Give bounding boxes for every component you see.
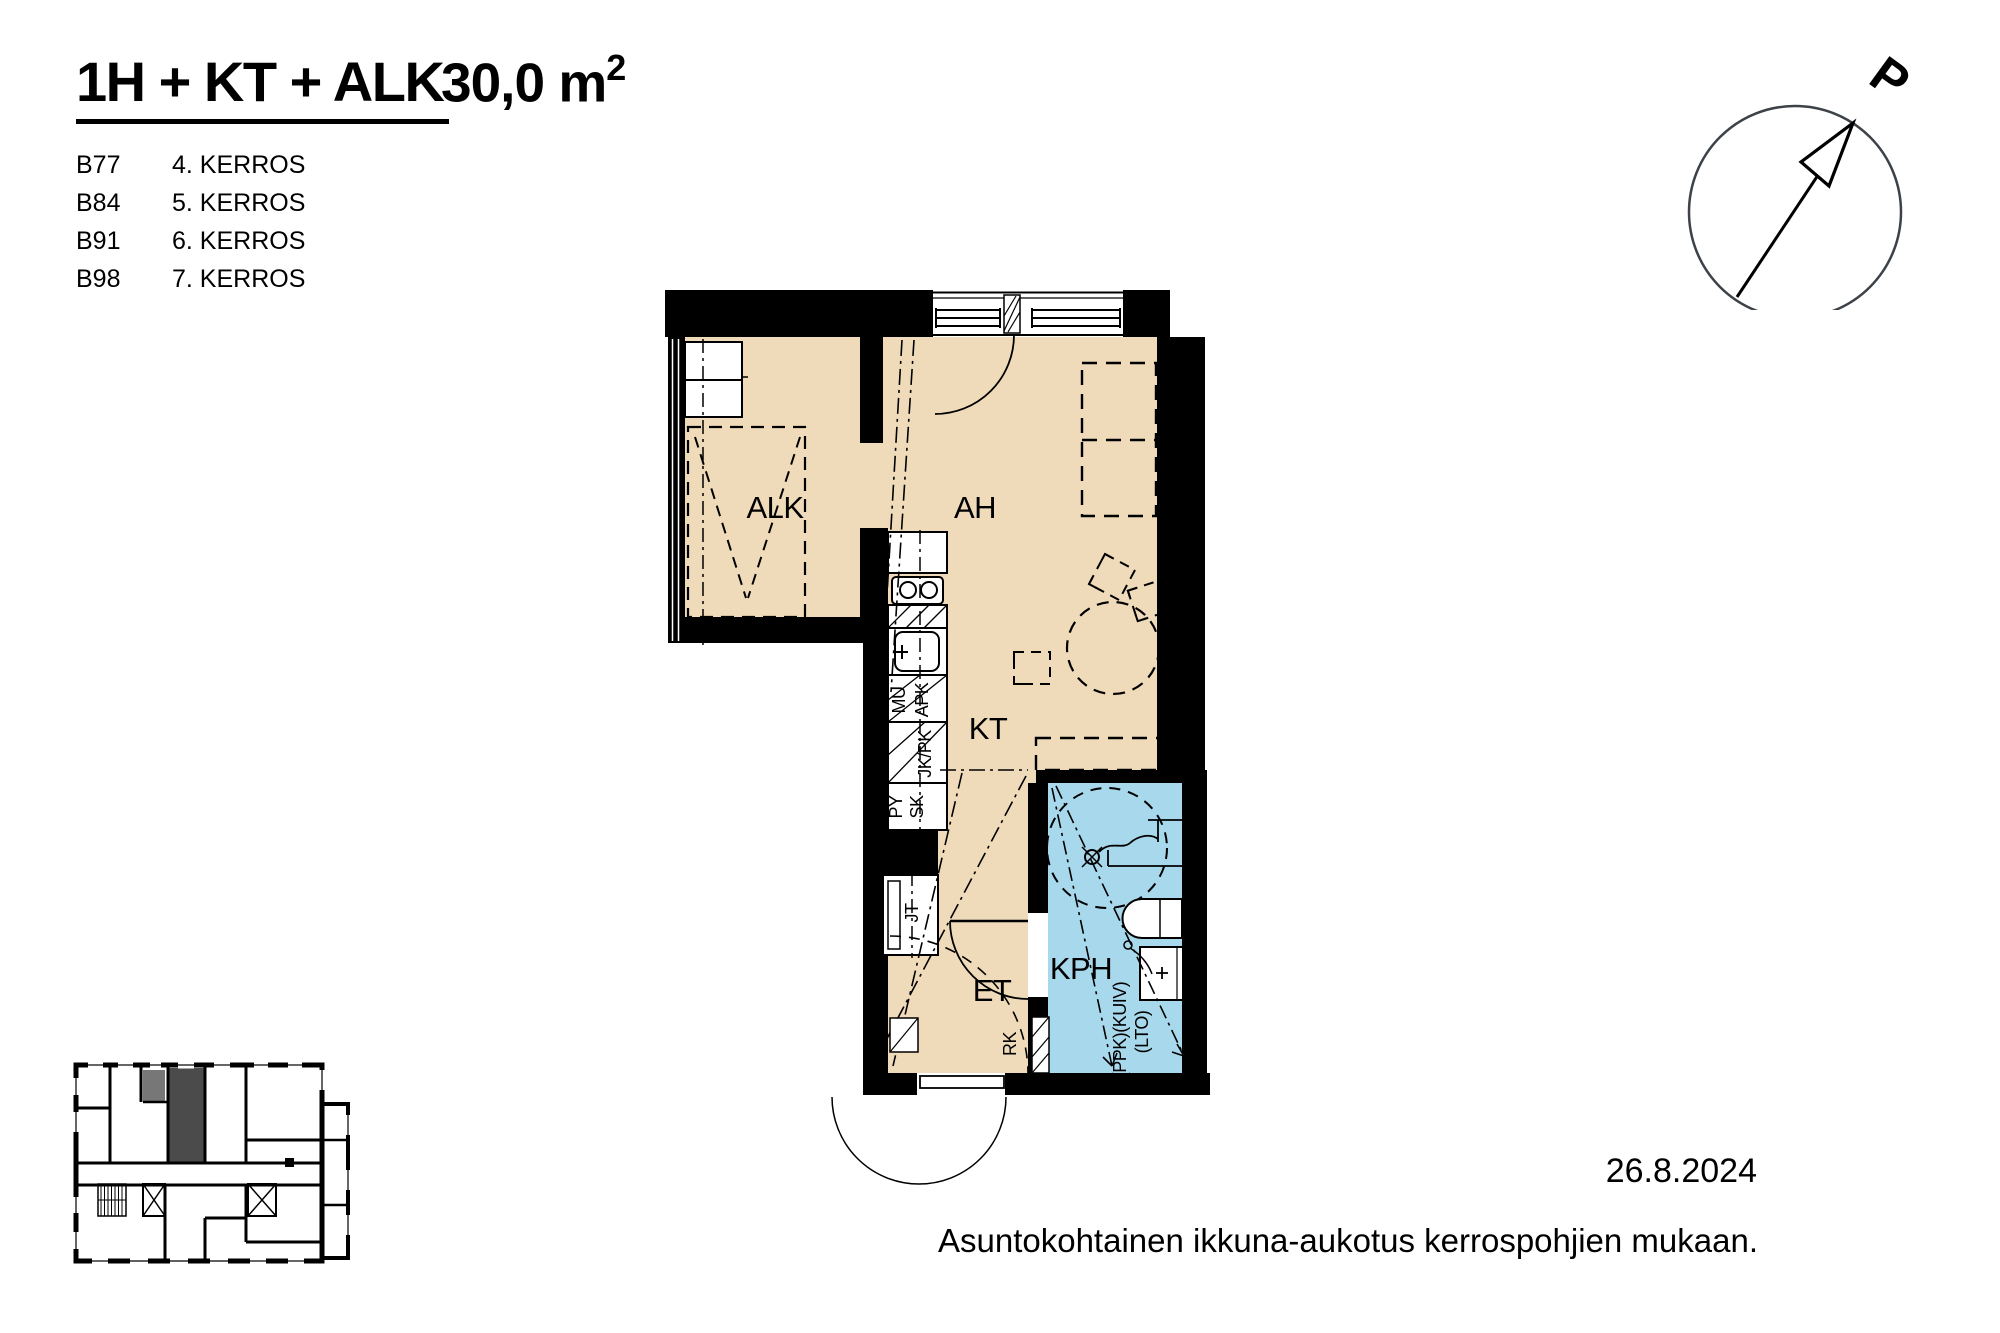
fixture-label-sk: SK (907, 795, 927, 819)
area-value: 30,0 m (441, 51, 606, 113)
window-note: Asuntokohtainen ikkuna-aukotus kerrospoh… (790, 1222, 1758, 1260)
apartment-floor: 6. KERROS (172, 222, 305, 260)
fixture-label-lto: (LTO) (1132, 1011, 1152, 1054)
room-label-et: ET (973, 973, 1012, 1008)
fixture-label-mu: MU (889, 687, 909, 714)
apartment-floor: 7. KERROS (172, 260, 305, 298)
opening-floor (858, 443, 888, 528)
north-arrow-icon: P (1660, 30, 1950, 310)
apartment-list: B77 4. KERROS B84 5. KERROS B91 6. KERRO… (76, 146, 305, 298)
apartment-row: B91 6. KERROS (76, 222, 305, 260)
apartment-id: B91 (76, 222, 172, 260)
key-plan (58, 1048, 368, 1278)
fixture-label-jt: JT (902, 903, 922, 923)
floor-plan-sheet: 1H + KT + ALK 30,0 m2 B77 4. KERROS B84 … (0, 0, 2000, 1333)
apartment-id: B84 (76, 184, 172, 222)
electrical-cabinet (1032, 1017, 1049, 1073)
entrance-door-leaf (920, 1076, 1004, 1088)
fixture-label-ppk-kuiv: (PPK)(KUIV) (1110, 982, 1130, 1079)
drawing-date: 26.8.2024 (1450, 1152, 1757, 1191)
highlighted-unit-part (143, 1070, 165, 1102)
main-floor-plan: ALK AH KT ET KPH MU APK JK/PK PY SK JT R… (640, 270, 1240, 1210)
apartment-area: 30,0 m2 (441, 52, 625, 110)
apartment-floor: 4. KERROS (172, 146, 305, 184)
fixture-label-rk: RK (1000, 1032, 1020, 1056)
room-label-kt: KT (969, 711, 1008, 746)
north-label: P (1860, 46, 1920, 111)
apartment-row: B98 7. KERROS (76, 260, 305, 298)
area-superscript: 2 (606, 47, 625, 88)
apartment-type-title: 1H + KT + ALK (76, 54, 449, 124)
apartment-row: B77 4. KERROS (76, 146, 305, 184)
apartment-row: B84 5. KERROS (76, 184, 305, 222)
fixture-label-jkpk: JK/PK (915, 730, 935, 778)
apartment-floor: 5. KERROS (172, 184, 305, 222)
entrance-door-swing (832, 1097, 1006, 1184)
fixture-label-apk: APK (912, 682, 932, 717)
fixture-label-py: PY (886, 795, 906, 819)
room-label-ah: AH (954, 490, 996, 525)
room-label-kph: KPH (1050, 951, 1112, 986)
highlighted-unit (168, 1068, 205, 1162)
apartment-id: B77 (76, 146, 172, 184)
apartment-id: B98 (76, 260, 172, 298)
room-label-alk: ALK (746, 490, 804, 525)
toilet (1123, 899, 1183, 938)
